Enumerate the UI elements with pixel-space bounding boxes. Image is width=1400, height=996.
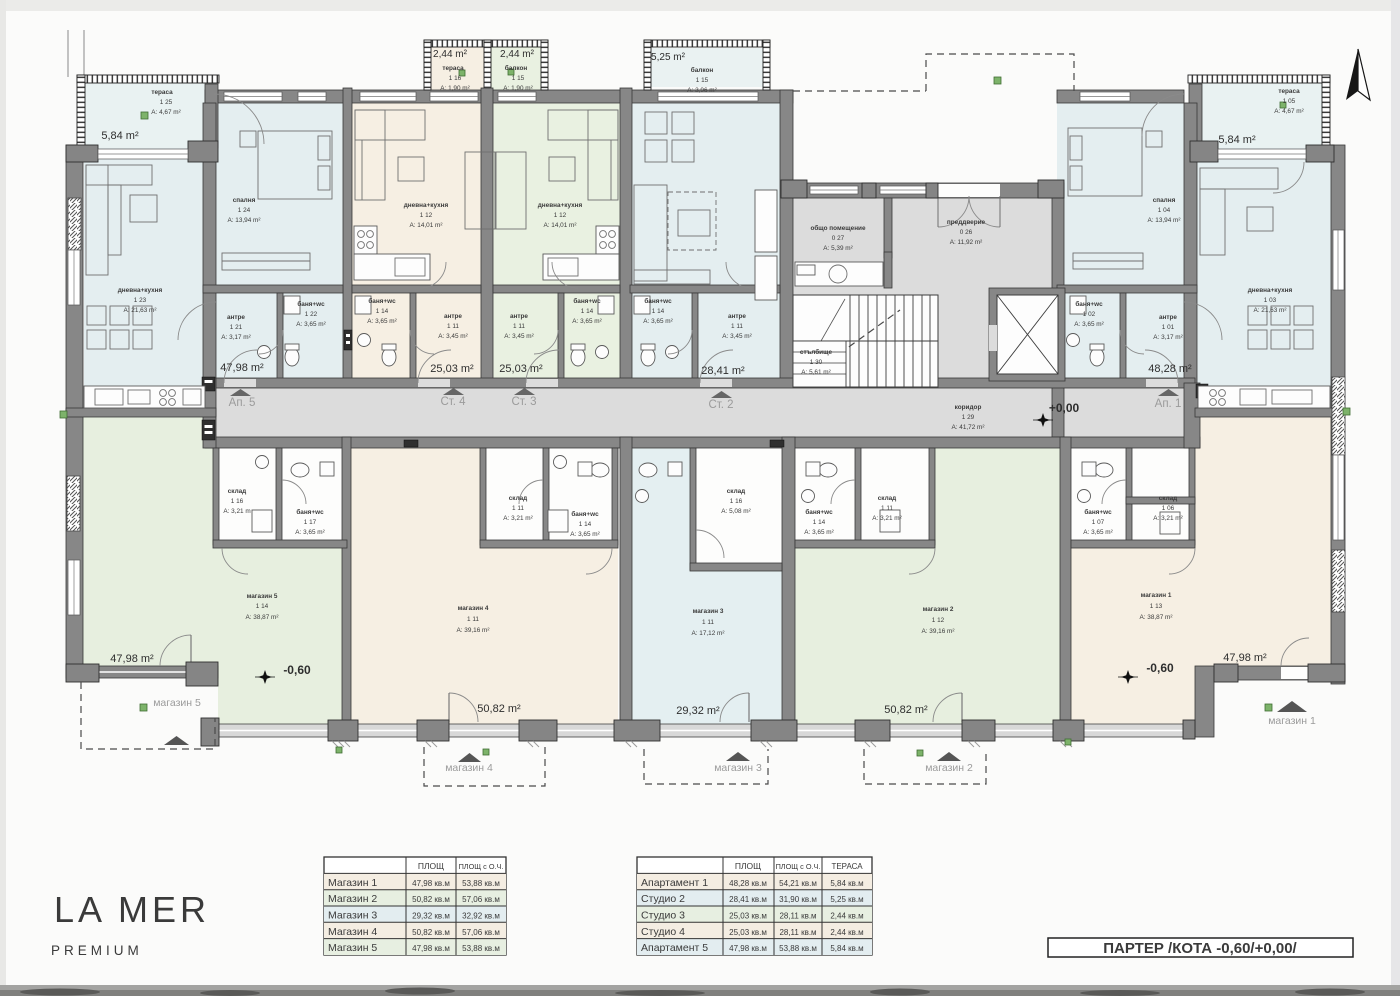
svg-text:1 02: 1 02 (1083, 311, 1096, 318)
svg-text:25,03 m²: 25,03 m² (499, 363, 543, 375)
svg-text:29,32 m²: 29,32 m² (676, 705, 720, 717)
svg-text:1 23: 1 23 (134, 297, 147, 304)
svg-text:склад: склад (228, 488, 247, 495)
svg-text:1 22: 1 22 (305, 311, 318, 318)
svg-text:A: 3,96 m²: A: 3,96 m² (687, 87, 716, 94)
svg-text:1 30: 1 30 (810, 359, 823, 366)
svg-text:баня+wc: баня+wc (644, 297, 672, 305)
svg-text:A: 4,67 m²: A: 4,67 m² (1274, 108, 1303, 115)
svg-text:1 16: 1 16 (231, 498, 244, 505)
svg-text:A: 39,16 m²: A: 39,16 m² (456, 627, 489, 634)
svg-text:A: 5,39 m²: A: 5,39 m² (823, 245, 852, 252)
svg-text:магазин 5: магазин 5 (247, 593, 278, 600)
svg-text:A: 3,65 m²: A: 3,65 m² (1083, 529, 1112, 536)
svg-text:дневна+кухня: дневна+кухня (404, 202, 449, 209)
svg-text:1 29: 1 29 (962, 414, 975, 421)
svg-text:1 14: 1 14 (256, 603, 269, 610)
svg-text:1 14: 1 14 (579, 521, 592, 528)
svg-text:баня+wc: баня+wc (1084, 508, 1112, 516)
svg-text:Студио 2: Студио 2 (641, 893, 685, 905)
svg-text:антре: антре (728, 313, 746, 320)
svg-text:магазин 4: магазин 4 (445, 762, 493, 774)
svg-text:A: 3,21 m²: A: 3,21 m² (872, 515, 901, 522)
svg-text:1 11: 1 11 (513, 323, 525, 330)
svg-text:A: 3,17 m²: A: 3,17 m² (221, 334, 250, 341)
svg-text:2,44 m²: 2,44 m² (500, 49, 535, 60)
svg-text:PREMIUM: PREMIUM (51, 943, 143, 958)
svg-text:Магазин 5: Магазин 5 (328, 942, 377, 954)
svg-text:57,06 кв.м: 57,06 кв.м (462, 928, 500, 937)
svg-text:тераса: тераса (151, 89, 173, 96)
svg-text:A: 3,21 m²: A: 3,21 m² (503, 515, 532, 522)
svg-text:A: 39,16 m²: A: 39,16 m² (921, 628, 954, 635)
svg-text:баня+wc: баня+wc (296, 508, 324, 516)
svg-text:Студио 4: Студио 4 (641, 926, 685, 938)
svg-text:A: 21,63 m²: A: 21,63 m² (123, 307, 156, 314)
svg-text:Ап. 1: Ап. 1 (1155, 398, 1182, 410)
svg-text:ПЛОЩ с О.Ч.: ПЛОЩ с О.Ч. (776, 862, 821, 871)
svg-text:A: 3,65 m²: A: 3,65 m² (1074, 321, 1103, 328)
svg-text:1 15: 1 15 (696, 77, 709, 84)
svg-text:A: 1,90 m²: A: 1,90 m² (440, 85, 469, 92)
svg-text:1 12: 1 12 (932, 617, 945, 624)
svg-text:28,41 кв.м: 28,41 кв.м (729, 895, 767, 904)
svg-text:47,98 m²: 47,98 m² (110, 653, 154, 665)
svg-text:1 17: 1 17 (304, 519, 317, 526)
svg-text:Магазин 4: Магазин 4 (328, 926, 377, 938)
svg-text:1 04: 1 04 (1158, 207, 1171, 214)
svg-text:1 11: 1 11 (512, 505, 524, 512)
svg-text:A: 1,90 m²: A: 1,90 m² (503, 85, 532, 92)
svg-text:53,88 кв.м: 53,88 кв.м (462, 879, 500, 888)
svg-text:5,25 m²: 5,25 m² (651, 52, 686, 63)
svg-text:57,06 кв.м: 57,06 кв.м (462, 895, 500, 904)
svg-text:Студио 3: Студио 3 (641, 910, 685, 922)
svg-text:баня+wc: баня+wc (368, 297, 396, 305)
svg-text:балкон: балкон (505, 64, 528, 72)
svg-text:A: 5,08 m²: A: 5,08 m² (721, 508, 750, 515)
svg-text:1 11: 1 11 (881, 505, 893, 512)
svg-text:5,25 кв.м: 5,25 кв.м (830, 895, 863, 904)
svg-text:склад: склад (509, 495, 528, 502)
svg-text:1 14: 1 14 (813, 519, 826, 526)
svg-text:47,98 кв.м: 47,98 кв.м (412, 879, 450, 888)
svg-text:1 01: 1 01 (1162, 324, 1175, 331)
svg-text:50,82 кв.м: 50,82 кв.м (412, 895, 450, 904)
svg-text:антре: антре (510, 313, 528, 320)
svg-text:Ст. 2: Ст. 2 (708, 399, 733, 411)
svg-text:A: 3,65 m²: A: 3,65 m² (367, 318, 396, 325)
svg-text:A: 38,87 m²: A: 38,87 m² (1139, 614, 1172, 621)
svg-text:1 06: 1 06 (1162, 505, 1175, 512)
svg-text:A: 17,12 m²: A: 17,12 m² (691, 630, 724, 637)
svg-text:магазин 2: магазин 2 (925, 762, 973, 774)
svg-text:A: 3,65 m²: A: 3,65 m² (295, 529, 324, 536)
svg-text:0 26: 0 26 (960, 229, 973, 236)
svg-text:29,32 кв.м: 29,32 кв.м (412, 912, 450, 921)
svg-text:47,98 кв.м: 47,98 кв.м (729, 944, 767, 953)
svg-text:антре: антре (444, 313, 462, 320)
svg-text:1 24: 1 24 (238, 207, 251, 214)
svg-text:A: 3,65 m²: A: 3,65 m² (572, 318, 601, 325)
svg-text:балкон: балкон (691, 66, 714, 74)
svg-text:преддверие: преддверие (947, 219, 986, 226)
svg-text:47,98 m²: 47,98 m² (1223, 652, 1267, 664)
svg-text:Магазин 1: Магазин 1 (328, 877, 377, 889)
svg-text:A: 3,45 m²: A: 3,45 m² (722, 333, 751, 340)
svg-text:50,82 m²: 50,82 m² (477, 703, 521, 715)
svg-text:A: 11,92 m²: A: 11,92 m² (950, 239, 983, 246)
svg-text:5,84 m²: 5,84 m² (1218, 134, 1256, 146)
svg-text:магазин 4: магазин 4 (458, 605, 489, 612)
svg-text:1 14: 1 14 (376, 308, 389, 315)
svg-text:48,28 m²: 48,28 m² (1148, 363, 1192, 375)
svg-text:Ст. 3: Ст. 3 (511, 396, 536, 408)
svg-text:A: 3,45 m²: A: 3,45 m² (504, 333, 533, 340)
svg-text:25,03 кв.м: 25,03 кв.м (729, 928, 767, 937)
svg-text:склад: склад (1159, 495, 1178, 502)
svg-text:Ст. 4: Ст. 4 (440, 396, 466, 408)
svg-text:1 21: 1 21 (230, 324, 243, 331)
svg-text:1 15: 1 15 (512, 75, 525, 82)
svg-text:A: 14,01 m²: A: 14,01 m² (409, 222, 442, 229)
svg-text:48,28 кв.м: 48,28 кв.м (729, 879, 767, 888)
svg-text:1 25: 1 25 (160, 99, 173, 106)
svg-text:Ап. 5: Ап. 5 (229, 397, 256, 409)
svg-text:ПЛОЩ: ПЛОЩ (418, 861, 444, 871)
svg-text:ТЕРАСА: ТЕРАСА (831, 862, 863, 871)
svg-text:2,44 кв.м: 2,44 кв.м (830, 928, 863, 937)
svg-text:A: 13,94 m²: A: 13,94 m² (227, 217, 260, 224)
svg-text:5,84 кв.м: 5,84 кв.м (830, 879, 863, 888)
svg-text:28,11 кв.м: 28,11 кв.м (779, 928, 816, 937)
svg-text:A: 5,61 m²: A: 5,61 m² (801, 369, 830, 376)
svg-text:A: 3,45 m²: A: 3,45 m² (438, 333, 467, 340)
svg-text:31,90 кв.м: 31,90 кв.м (779, 895, 817, 904)
svg-text:25,03 кв.м: 25,03 кв.м (729, 912, 767, 921)
svg-text:баня+wc: баня+wc (297, 300, 325, 308)
svg-text:54,21 кв.м: 54,21 кв.м (779, 879, 817, 888)
svg-text:1 16: 1 16 (449, 75, 462, 82)
svg-text:баня+wc: баня+wc (805, 508, 833, 516)
svg-text:магазин 1: магазин 1 (1268, 715, 1316, 727)
svg-text:A: 14,01 m²: A: 14,01 m² (543, 222, 576, 229)
svg-text:коридор: коридор (955, 404, 982, 411)
svg-text:склад: склад (727, 488, 746, 495)
svg-text:32,92 кв.м: 32,92 кв.м (462, 912, 500, 921)
svg-text:1 11: 1 11 (731, 323, 743, 330)
svg-text:баня+wc: баня+wc (1075, 300, 1103, 308)
svg-text:53,88 кв.м: 53,88 кв.м (779, 944, 817, 953)
svg-text:A: 21,63 m²: A: 21,63 m² (1253, 307, 1286, 314)
svg-text:баня+wc: баня+wc (573, 297, 601, 305)
svg-text:дневна+кухня: дневна+кухня (538, 202, 583, 209)
svg-text:1 14: 1 14 (581, 308, 594, 315)
svg-text:магазин 1: магазин 1 (1141, 592, 1172, 599)
svg-text:47,98 кв.м: 47,98 кв.м (412, 944, 450, 953)
svg-text:Магазин 3: Магазин 3 (328, 910, 377, 922)
svg-text:A: 41,72 m²: A: 41,72 m² (951, 424, 984, 431)
svg-text:A: 3,65 m²: A: 3,65 m² (296, 321, 325, 328)
svg-text:LA MER: LA MER (54, 889, 210, 930)
svg-text:A: 3,17 m²: A: 3,17 m² (1153, 334, 1182, 341)
svg-text:тераса: тераса (442, 65, 464, 72)
svg-text:1 05: 1 05 (1283, 98, 1296, 105)
svg-text:1 12: 1 12 (420, 212, 433, 219)
svg-text:50,82 кв.м: 50,82 кв.м (412, 928, 450, 937)
svg-text:50,82 m²: 50,82 m² (884, 704, 928, 716)
svg-text:спалня: спалня (233, 197, 256, 204)
svg-text:общо помещение: общо помещение (810, 224, 866, 232)
svg-text:ПЛОЩ: ПЛОЩ (735, 861, 761, 871)
svg-text:спалня: спалня (1153, 197, 1176, 204)
svg-text:1 16: 1 16 (730, 498, 743, 505)
svg-text:A: 3,21 m²: A: 3,21 m² (1153, 515, 1182, 522)
svg-text:склад: склад (878, 495, 897, 502)
svg-text:магазин 3: магазин 3 (693, 608, 724, 615)
svg-text:дневна+кухня: дневна+кухня (1248, 287, 1293, 294)
svg-text:5,84 кв.м: 5,84 кв.м (830, 944, 863, 953)
svg-text:A: 38,87 m²: A: 38,87 m² (245, 614, 278, 621)
svg-text:дневна+кухня: дневна+кухня (118, 287, 163, 294)
svg-text:28,41 m²: 28,41 m² (701, 365, 745, 377)
svg-text:Магазин 2: Магазин 2 (328, 893, 377, 905)
svg-text:-0,60: -0,60 (1146, 661, 1174, 675)
svg-text:1 12: 1 12 (554, 212, 567, 219)
svg-text:1 14: 1 14 (652, 308, 665, 315)
svg-text:Апартамент 5: Апартамент 5 (641, 942, 708, 954)
svg-text:A: 3,65 m²: A: 3,65 m² (804, 529, 833, 536)
svg-text:28,11 кв.м: 28,11 кв.м (779, 912, 816, 921)
svg-text:Апартамент 1: Апартамент 1 (641, 877, 708, 889)
svg-text:5,84 m²: 5,84 m² (101, 130, 139, 142)
svg-text:баня+wc: баня+wc (571, 510, 599, 518)
svg-text:A: 3,65 m²: A: 3,65 m² (643, 318, 672, 325)
svg-text:1 13: 1 13 (1150, 603, 1163, 610)
svg-text:2,44 кв.м: 2,44 кв.м (830, 912, 863, 921)
svg-text:2,44 m²: 2,44 m² (433, 49, 468, 60)
svg-text:ПАРТЕР /КОТА -0,60/+0,00/: ПАРТЕР /КОТА -0,60/+0,00/ (1103, 940, 1297, 957)
svg-text:1 07: 1 07 (1092, 519, 1105, 526)
svg-text:+0,00: +0,00 (1049, 401, 1080, 415)
svg-text:1 11: 1 11 (447, 323, 459, 330)
svg-text:стълбище: стълбище (800, 348, 833, 356)
svg-text:47,98 m²: 47,98 m² (220, 362, 264, 374)
svg-text:A: 13,94 m²: A: 13,94 m² (1147, 217, 1180, 224)
svg-text:25,03 m²: 25,03 m² (430, 363, 474, 375)
svg-text:ПЛОЩ с О.Ч.: ПЛОЩ с О.Ч. (459, 862, 504, 871)
svg-text:магазин 5: магазин 5 (153, 697, 201, 709)
svg-text:магазин 2: магазин 2 (923, 606, 954, 613)
svg-text:1 11: 1 11 (467, 616, 479, 623)
svg-text:A: 3,21 m: A: 3,21 m (223, 508, 250, 515)
svg-text:антре: антре (1159, 314, 1177, 321)
svg-text:-0,60: -0,60 (283, 663, 311, 677)
svg-text:1 03: 1 03 (1264, 297, 1277, 304)
svg-text:тераса: тераса (1278, 88, 1300, 95)
svg-text:53,88 кв.м: 53,88 кв.м (462, 944, 500, 953)
svg-text:A: 4,67 m²: A: 4,67 m² (151, 109, 180, 116)
svg-text:0 27: 0 27 (832, 235, 845, 242)
svg-text:1 11: 1 11 (702, 619, 714, 626)
svg-text:антре: антре (227, 314, 245, 321)
svg-text:A: 3,65 m²: A: 3,65 m² (570, 531, 599, 538)
svg-text:магазин 3: магазин 3 (714, 762, 762, 774)
